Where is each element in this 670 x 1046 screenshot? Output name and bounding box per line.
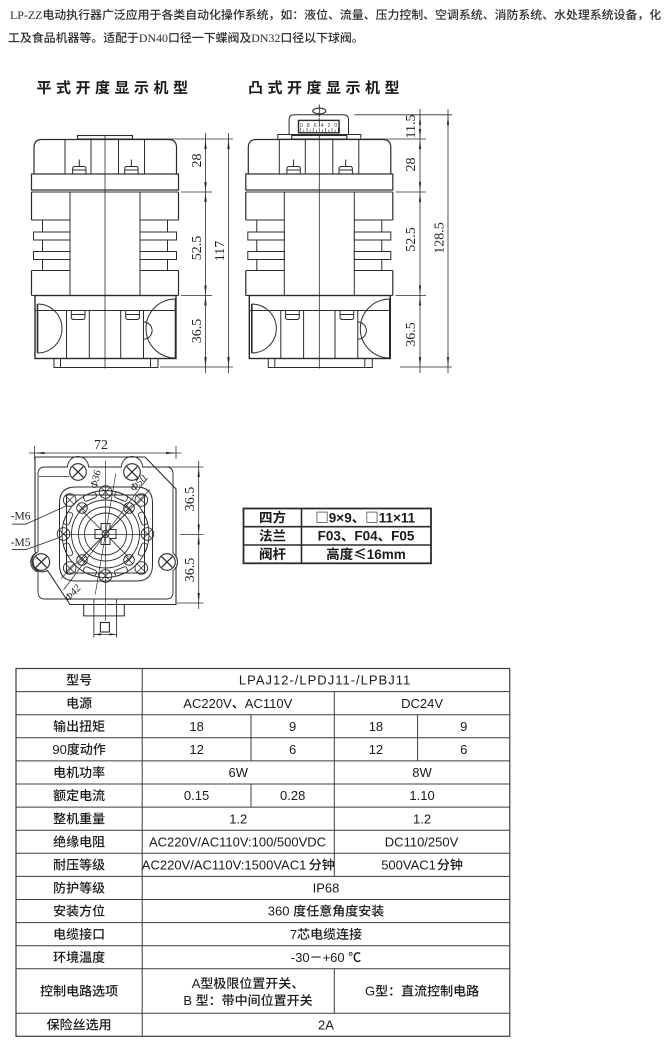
- svg-text:DC24V: DC24V: [401, 696, 443, 711]
- svg-text:1.2: 1.2: [413, 811, 431, 826]
- svg-text:18: 18: [369, 719, 383, 734]
- svg-text:52.5: 52.5: [190, 236, 205, 261]
- svg-text:DC110/250V: DC110/250V: [385, 834, 459, 849]
- svg-text:36.5: 36.5: [190, 319, 205, 344]
- svg-text:16mm: 16mm: [367, 547, 406, 562]
- svg-text:G: G: [365, 984, 375, 999]
- svg-text:11.5: 11.5: [404, 115, 419, 139]
- svg-text:A: A: [192, 976, 201, 991]
- svg-text:F05: F05: [391, 529, 415, 544]
- svg-text:52.5: 52.5: [404, 227, 419, 252]
- svg-text:0.15: 0.15: [184, 788, 209, 803]
- svg-text:B: B: [183, 993, 195, 1008]
- svg-text:IP68: IP68: [313, 881, 340, 896]
- svg-text:-30: -30: [291, 950, 310, 965]
- svg-text:+60: +60: [323, 950, 349, 965]
- svg-text:128.5: 128.5: [433, 222, 448, 254]
- svg-text:9: 9: [460, 719, 467, 734]
- svg-text:7: 7: [290, 927, 297, 942]
- svg-text:28: 28: [404, 158, 419, 172]
- svg-text:72: 72: [94, 438, 108, 453]
- svg-text:6W: 6W: [229, 765, 249, 780]
- svg-text:0.28: 0.28: [280, 788, 305, 803]
- svg-text:F03: F03: [318, 529, 342, 544]
- svg-text:9×9: 9×9: [329, 510, 352, 525]
- svg-text:2A: 2A: [318, 1017, 334, 1032]
- svg-text:AC220V: AC220V: [183, 696, 232, 711]
- svg-text:LPAJ12-/LPDJ11-/LPBJ11: LPAJ12-/LPDJ11-/LPBJ11: [239, 673, 411, 688]
- svg-text:6: 6: [460, 742, 467, 757]
- svg-text:36.5: 36.5: [404, 322, 419, 347]
- svg-text:F04: F04: [354, 529, 378, 544]
- svg-text:360: 360: [268, 904, 293, 919]
- svg-text:-M5: -M5: [11, 537, 31, 549]
- svg-text:500VAC1: 500VAC1: [381, 857, 436, 872]
- svg-text:117: 117: [213, 241, 228, 261]
- svg-text:AC220V/AC110V:100/500VDC: AC220V/AC110V:100/500VDC: [149, 834, 326, 849]
- svg-text:DN32: DN32: [251, 31, 280, 45]
- svg-text:11×11: 11×11: [379, 510, 416, 525]
- svg-text:9: 9: [289, 719, 296, 734]
- svg-text:18: 18: [189, 719, 203, 734]
- svg-text:36.5: 36.5: [183, 558, 198, 583]
- svg-text:8W: 8W: [412, 765, 432, 780]
- svg-text:6: 6: [289, 742, 296, 757]
- svg-text:90: 90: [52, 742, 66, 757]
- svg-text:12: 12: [369, 742, 383, 757]
- svg-text:LP-ZZ: LP-ZZ: [10, 8, 42, 22]
- svg-text:36.5: 36.5: [183, 487, 198, 512]
- svg-text:-M6: -M6: [11, 511, 31, 523]
- svg-text:AC110V: AC110V: [245, 696, 293, 711]
- svg-text:28: 28: [190, 154, 205, 168]
- svg-text:12: 12: [189, 742, 203, 757]
- svg-text:1.2: 1.2: [229, 811, 247, 826]
- svg-text:086420: 086420: [300, 123, 341, 129]
- svg-text:1.10: 1.10: [409, 788, 434, 803]
- svg-text:DN40: DN40: [139, 31, 168, 45]
- svg-text:AC220V/AC110V:1500VAC1: AC220V/AC110V:1500VAC1: [142, 857, 307, 872]
